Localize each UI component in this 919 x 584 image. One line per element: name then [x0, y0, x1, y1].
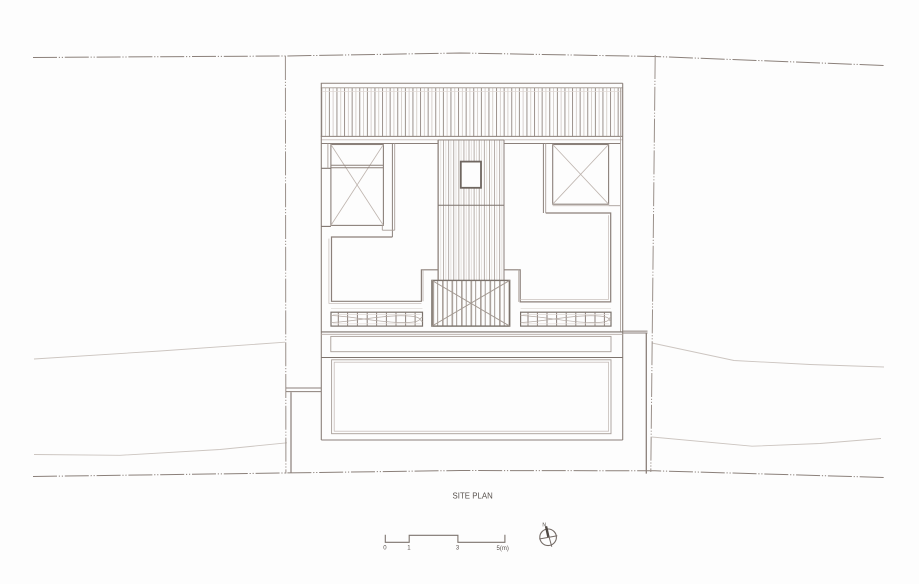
- svg-text:SITE PLAN: SITE PLAN: [453, 492, 493, 501]
- svg-text:N: N: [542, 522, 546, 528]
- svg-text:5(m): 5(m): [497, 546, 509, 552]
